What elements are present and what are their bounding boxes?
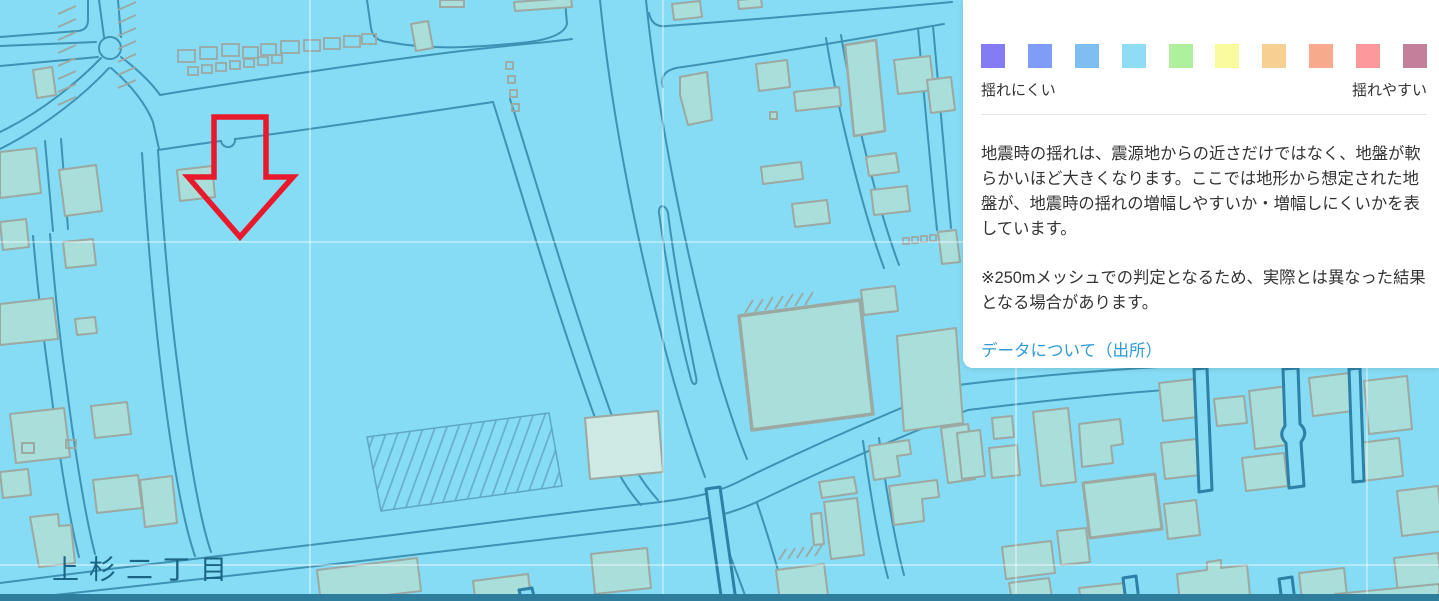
legend-swatch [981, 44, 1005, 68]
data-source-link[interactable]: データについて（出所） [981, 337, 1162, 361]
legend-labels: 揺れにくい 揺れやすい [981, 79, 1427, 100]
screenshot-stage: 上杉二丁目 揺れにくい 揺れやすい 地震時の揺れは、震源地からの近さだけではなく… [0, 0, 1439, 601]
legend-swatch [1169, 44, 1193, 68]
district-label: 上杉二丁目 [52, 555, 237, 585]
panel-note: ※250mメッシュでの判定となるため、実際とは異なった結果となる場合があります。 [981, 266, 1427, 316]
bottom-road-band [0, 594, 1439, 601]
legend-swatch [1075, 44, 1099, 68]
legend-swatch [1403, 44, 1427, 68]
legend-swatch [1262, 44, 1286, 68]
panel-divider [981, 114, 1427, 115]
legend-swatch [1028, 44, 1052, 68]
legend-swatch-row [981, 44, 1427, 68]
legend-label-left: 揺れにくい [981, 79, 1056, 100]
legend-swatch [1122, 44, 1146, 68]
legend-swatch [1215, 44, 1239, 68]
info-panel: 揺れにくい 揺れやすい 地震時の揺れは、震源地からの近さだけではなく、地盤が軟ら… [963, 0, 1439, 368]
panel-description: 地震時の揺れは、震源地からの近さだけではなく、地盤が軟らかいほど大きくなります。… [981, 142, 1427, 242]
legend-label-right: 揺れやすい [1352, 79, 1427, 100]
legend-swatch [1309, 44, 1333, 68]
legend-swatch [1356, 44, 1380, 68]
